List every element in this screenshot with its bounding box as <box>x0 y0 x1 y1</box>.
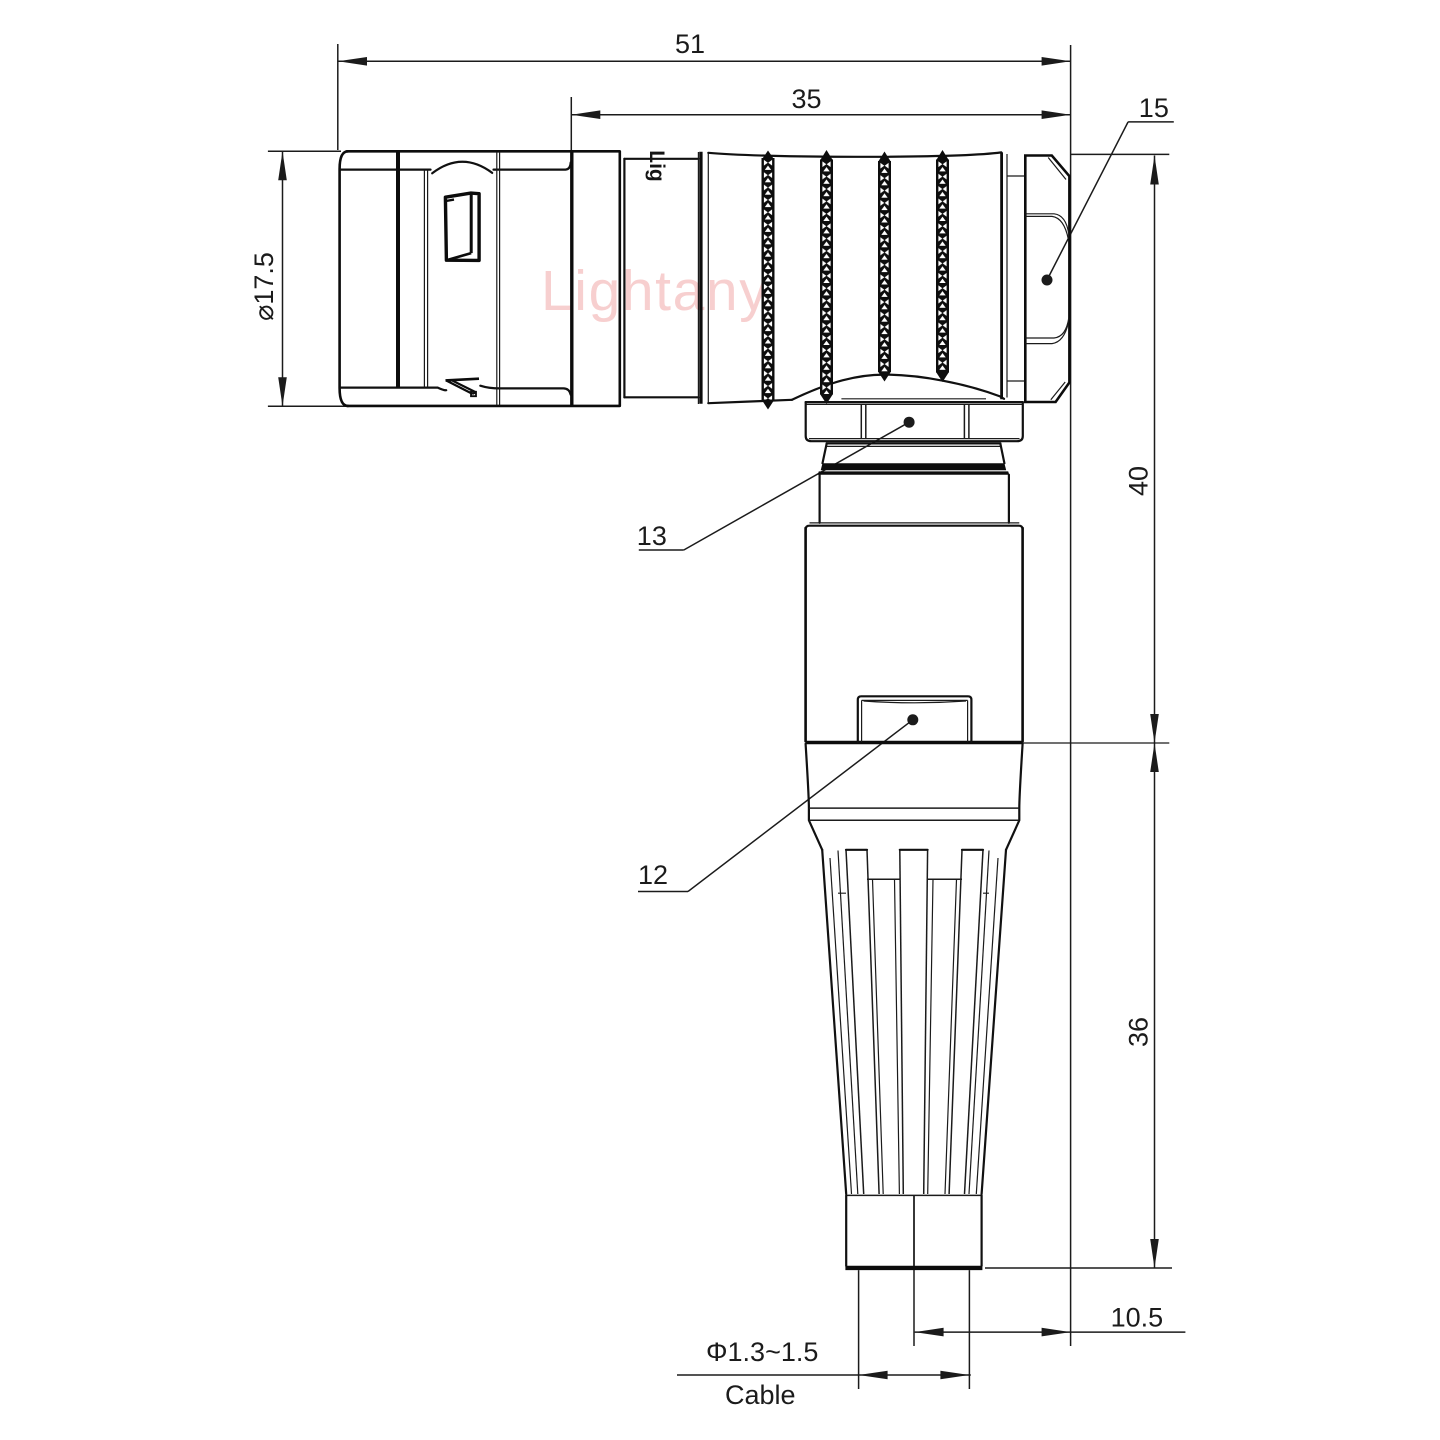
svg-text:40: 40 <box>1123 466 1153 496</box>
svg-text:51: 51 <box>675 29 705 59</box>
svg-text:Φ1.3~1.5: Φ1.3~1.5 <box>706 1337 818 1367</box>
svg-text:Lig: Lig <box>645 150 668 182</box>
svg-text:Lightany: Lightany <box>541 259 769 323</box>
svg-text:13: 13 <box>637 521 667 551</box>
svg-text:10.5: 10.5 <box>1111 1303 1164 1333</box>
svg-text:36: 36 <box>1124 1017 1154 1047</box>
svg-text:15: 15 <box>1139 93 1169 123</box>
svg-text:⌀17.5: ⌀17.5 <box>249 252 279 321</box>
svg-text:12: 12 <box>638 860 668 890</box>
svg-text:35: 35 <box>791 84 821 114</box>
svg-text:Cable: Cable <box>725 1380 796 1410</box>
